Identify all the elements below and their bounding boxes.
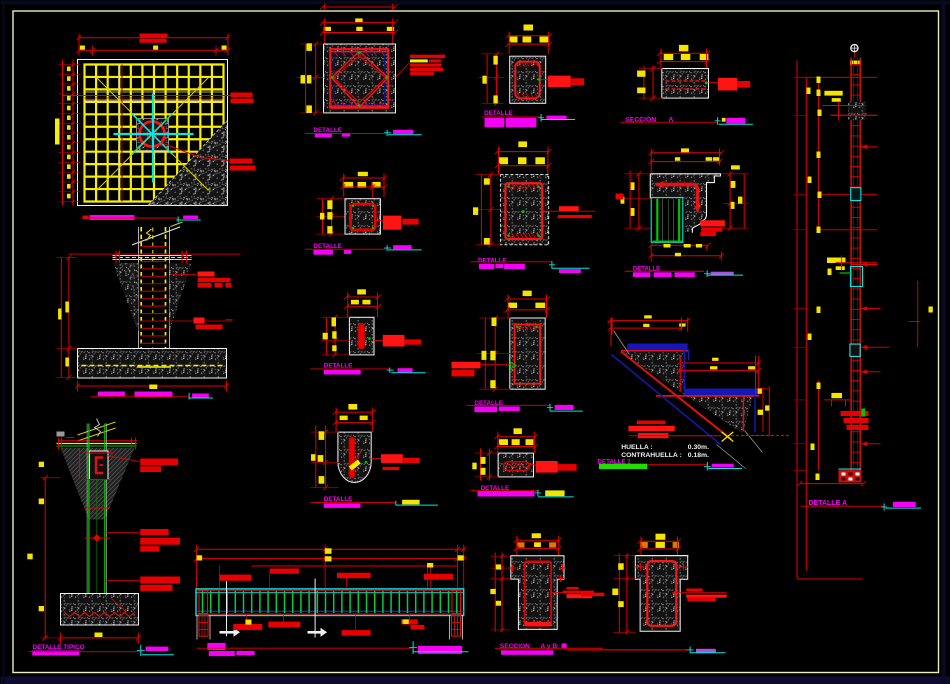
svg-text:A y B: A y B bbox=[541, 643, 558, 650]
svg-text:0.18m.: 0.18m. bbox=[688, 452, 709, 459]
svg-text:0.30m.: 0.30m. bbox=[688, 444, 709, 451]
svg-text:DETALLE: DETALLE bbox=[474, 400, 503, 407]
svg-text:HUELLA :: HUELLA : bbox=[621, 444, 652, 451]
svg-text:DETALLE TIPICO: DETALLE TIPICO bbox=[33, 644, 85, 651]
svg-text:DETALLE: DETALLE bbox=[478, 258, 507, 265]
svg-text:DETALLE: DETALLE bbox=[484, 110, 513, 117]
svg-text:SECCION: SECCION bbox=[500, 643, 530, 650]
